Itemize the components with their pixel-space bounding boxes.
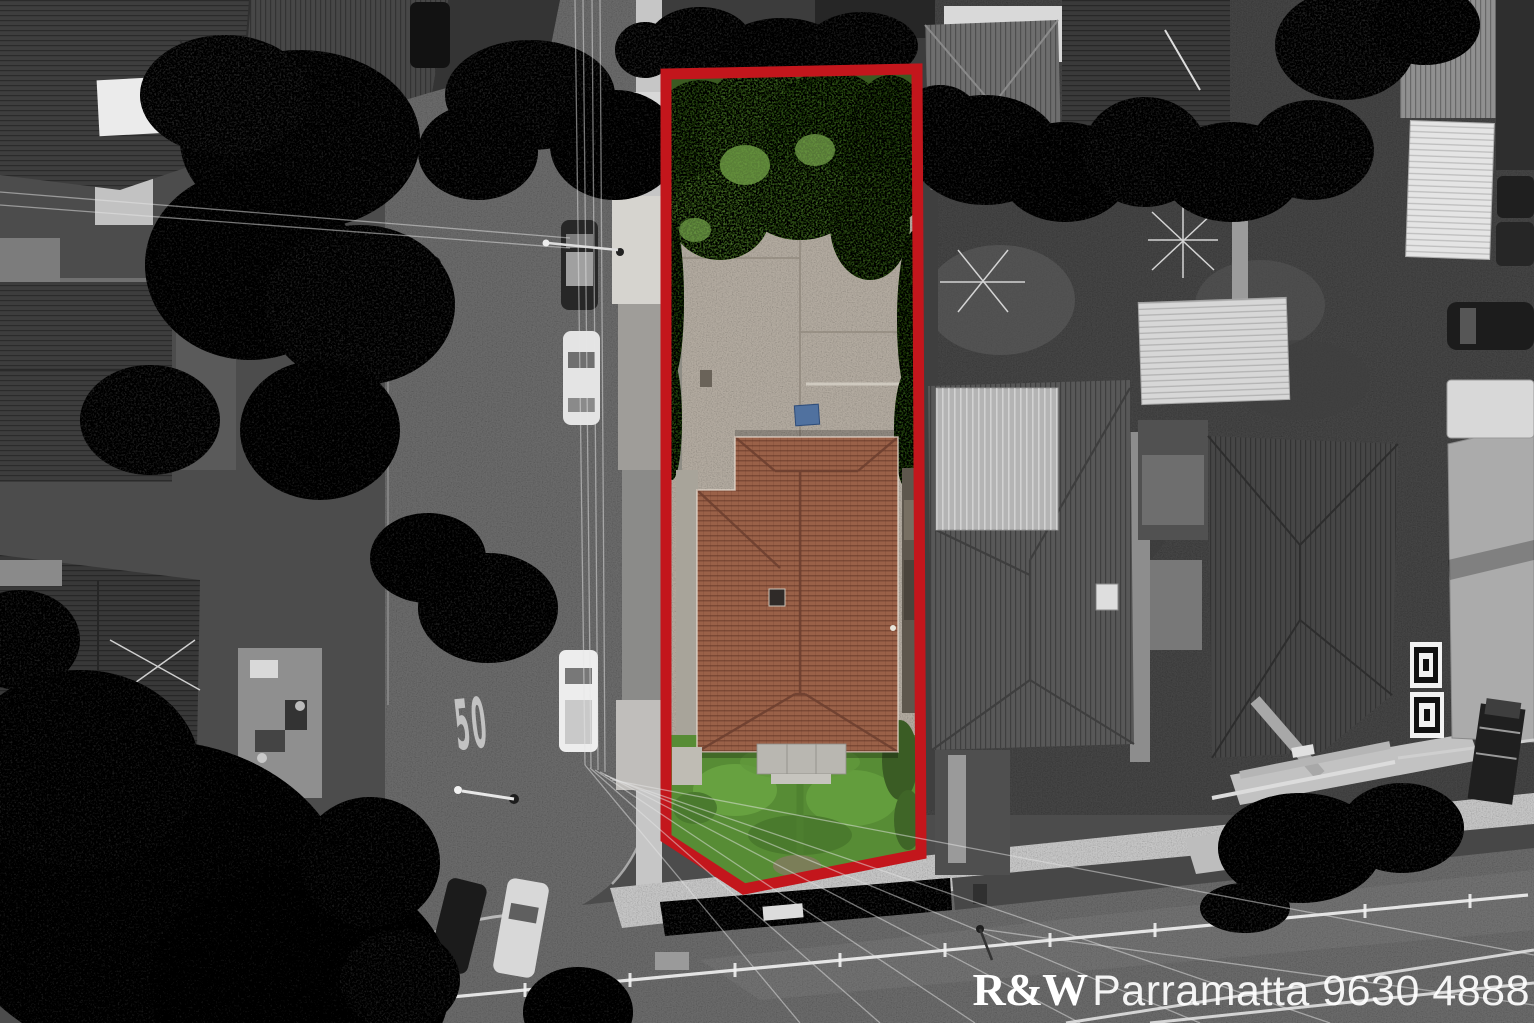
roof-chimney <box>769 589 785 606</box>
highlighted-lot <box>645 65 935 889</box>
carport-roof <box>1138 297 1289 404</box>
blue-parking-marker <box>794 404 819 426</box>
white-shed <box>1406 121 1495 260</box>
aerial-scene: 50 <box>0 0 1534 1023</box>
warehouse-roof <box>1448 424 1534 742</box>
chimney <box>1096 584 1118 610</box>
aerial-photo: 50 <box>0 0 1534 1023</box>
